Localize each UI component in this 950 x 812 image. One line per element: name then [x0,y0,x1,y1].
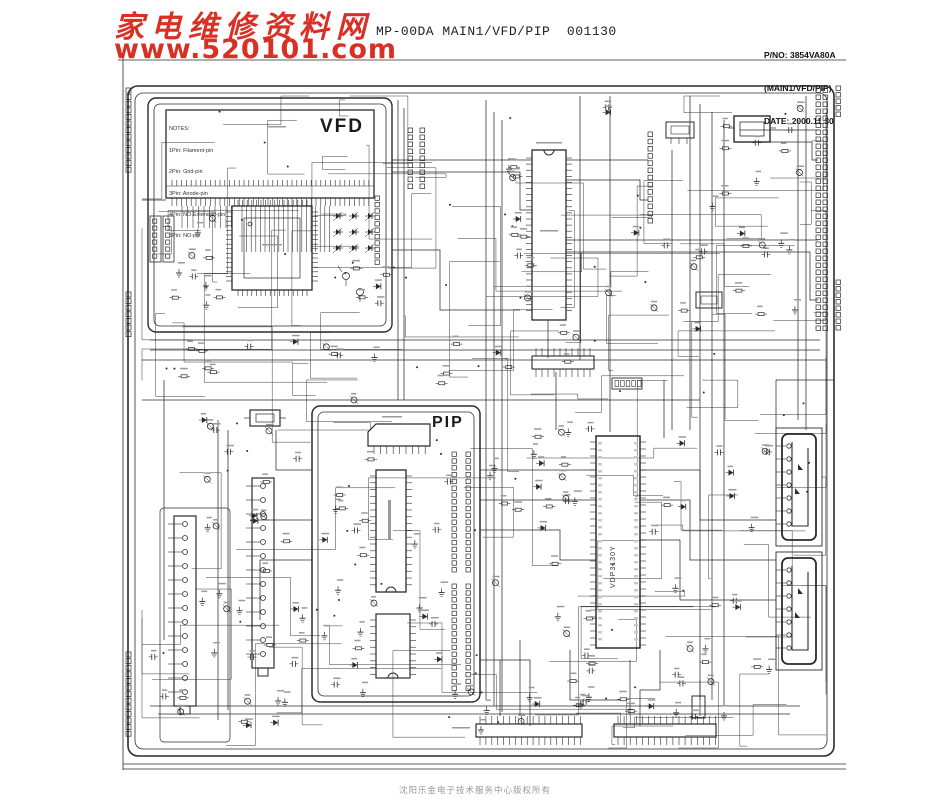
mid-connectors [532,348,642,389]
notes-line: 5Pin: NO-pin [169,233,225,240]
notes-line: NOTES: [169,126,225,133]
right-edge-connector [816,86,841,331]
signal-wires [142,96,826,748]
vfd-block-label: VFD [320,116,364,138]
pip-right-headers [452,452,470,690]
video-processor-label: VDP3130Y [610,498,617,588]
pip-main-ic [370,470,412,592]
vfd-notes: NOTES: 1Pin: Filament-pin 2Pin: Grid-pin… [169,112,225,255]
schematic-page: 家电维修资料网 www.520101.com MP-00DA MAIN1/VFD… [0,0,950,812]
main-micom-ic [526,142,572,320]
schematic-drawing [0,0,950,812]
board-frames [118,58,846,770]
av-jacks [776,428,822,670]
video-processor-ic [590,436,646,648]
vfd-key-matrix [333,196,379,302]
pip-block-label: PIP [432,414,464,432]
discrete-components [149,101,805,734]
left-tall-connectors [160,410,286,742]
notes-line: 1Pin: Filament-pin [169,148,225,155]
notes-line: 3Pin: Anode-pin [169,191,225,198]
notes-line: 2Pin: Grid-pin [169,169,225,176]
notes-line: 4Pin: NO.Extended-pin [169,212,225,219]
copyright-text: 沈阳乐金电子技术服务中心版权所有 [0,784,950,796]
